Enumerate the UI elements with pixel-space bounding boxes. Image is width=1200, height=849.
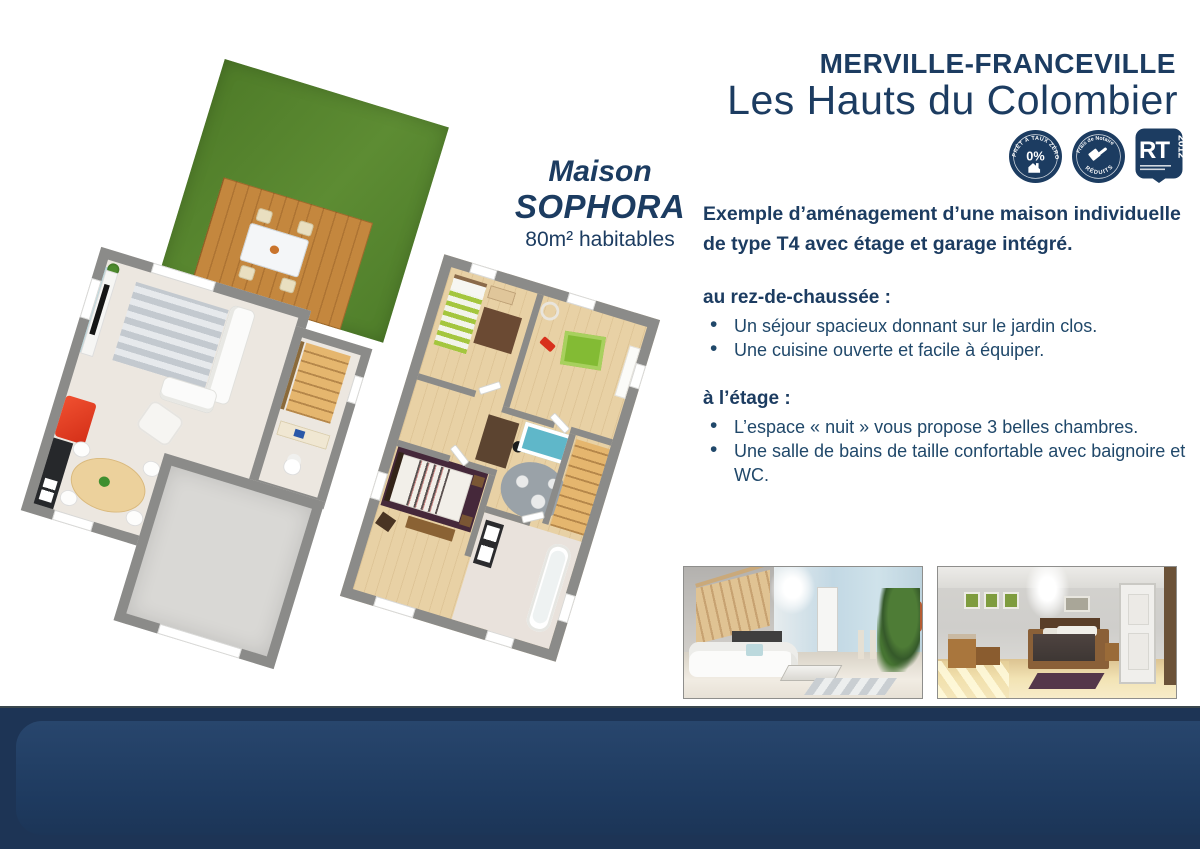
frais-de-notaire-badge: Frais de Notaire RÉDUITS xyxy=(1071,129,1126,184)
svg-text:RT: RT xyxy=(1139,137,1170,164)
location-title: MERVILLE-FRANCEVILLE xyxy=(820,50,1176,78)
house-name-line2: SOPHORA xyxy=(480,190,720,225)
bullet-item: Une cuisine ouverte et facile à équiper. xyxy=(703,338,1195,362)
fridge xyxy=(54,395,97,445)
window-opening xyxy=(347,375,364,404)
desk xyxy=(276,420,330,449)
svg-text:2012: 2012 xyxy=(1176,135,1185,159)
plant-icon xyxy=(877,588,920,672)
surface-area: 80m² habitables xyxy=(480,228,720,252)
svg-text:0%: 0% xyxy=(1026,148,1044,163)
section-ground-floor: au rez-de-chaussée : Un séjour spacieux … xyxy=(703,285,1195,362)
pouf xyxy=(134,398,185,448)
side-table xyxy=(976,647,1000,665)
house-name-line1: Maison xyxy=(480,156,720,188)
pret-a-taux-zero-badge: PRÊT À TAUX ZÉRO 0% xyxy=(1008,129,1063,184)
rug xyxy=(804,678,897,695)
staircase xyxy=(286,343,351,424)
garage-door-opening xyxy=(157,624,242,659)
play-mat xyxy=(560,331,606,371)
patio-chair xyxy=(296,220,314,237)
label-badges: PRÊT À TAUX ZÉRO 0% Frais de Notaire RÉD… xyxy=(1008,127,1184,185)
brown-rug xyxy=(473,307,522,354)
interior-wall xyxy=(417,373,476,397)
cushion xyxy=(746,644,763,656)
bullet-item: Un séjour spacieux donnant sur le jardin… xyxy=(703,314,1195,338)
dining-chair xyxy=(125,509,144,527)
bullet-list: Un séjour spacieux donnant sur le jardin… xyxy=(703,314,1195,362)
bedroom-photo xyxy=(937,566,1177,699)
open-door xyxy=(479,382,500,394)
picture-frame xyxy=(1003,592,1019,609)
door-panel xyxy=(1128,594,1149,625)
door xyxy=(817,587,838,652)
patio-chair xyxy=(255,208,273,225)
picture-frame xyxy=(984,592,1000,609)
footer-inner-panel xyxy=(16,721,1200,835)
chandelier-icon xyxy=(770,567,815,614)
program-title: Les Hauts du Colombier xyxy=(727,80,1178,121)
section-title: au rez-de-chaussée : xyxy=(703,285,1195,310)
toy-car-icon xyxy=(539,336,556,352)
window-opening xyxy=(566,292,596,310)
dining-chair xyxy=(72,440,91,458)
blanket xyxy=(1033,634,1095,662)
window-opening xyxy=(52,510,94,532)
patio-chair xyxy=(238,265,256,282)
toilet-icon xyxy=(282,457,301,476)
mirror-icon xyxy=(538,299,561,322)
brochure-page: MERVILLE-FRANCEVILLE Les Hauts du Colomb… xyxy=(0,0,1200,849)
door-panel xyxy=(1128,633,1149,670)
ottoman xyxy=(375,511,396,532)
window-opening xyxy=(469,263,497,281)
desk xyxy=(475,414,519,468)
chair xyxy=(948,634,977,668)
sofa xyxy=(689,642,798,677)
rug xyxy=(1029,673,1105,689)
dining-table xyxy=(64,449,152,521)
intro-line: Exemple d’aménagement d’une maison indiv… xyxy=(703,199,1195,229)
chandelier-icon xyxy=(1026,567,1069,619)
dresser xyxy=(487,285,516,305)
plan-label: Maison SOPHORA 80m² habitables xyxy=(480,156,720,252)
intro-line: de type T4 avec étage et garage intégré. xyxy=(703,229,1195,259)
footer-band xyxy=(0,706,1200,849)
window-opening xyxy=(373,596,416,618)
picture-frame xyxy=(1064,596,1089,612)
bullet-item: Une salle de bains de taille confortable… xyxy=(703,439,1195,487)
rt-2012-badge: RT 2012 xyxy=(1134,127,1184,185)
intro-paragraph: Exemple d’aménagement d’une maison indiv… xyxy=(703,199,1195,259)
section-upper-floor: à l’étage : L’espace « nuit » vous propo… xyxy=(703,386,1195,487)
picture-frame xyxy=(964,592,980,609)
wall xyxy=(1164,567,1176,685)
living-room-photo xyxy=(683,566,923,699)
description-column: Exemple d’aménagement d’une maison indiv… xyxy=(703,199,1195,487)
bullet-item: L’espace « nuit » vous propose 3 belles … xyxy=(703,415,1195,439)
section-title: à l’étage : xyxy=(703,386,1195,411)
bullet-list: L’espace « nuit » vous propose 3 belles … xyxy=(703,415,1195,487)
door xyxy=(1119,583,1156,684)
wall-pictures xyxy=(964,592,1019,609)
patio-chair xyxy=(279,277,297,294)
